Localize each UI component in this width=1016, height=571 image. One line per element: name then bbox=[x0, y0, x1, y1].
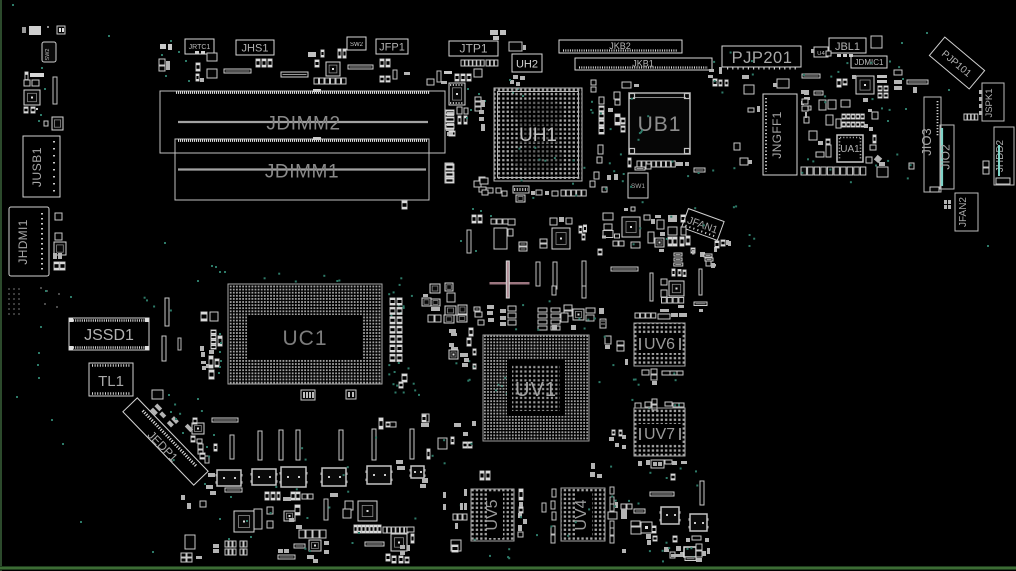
svg-text:UV1: UV1 bbox=[515, 379, 557, 401]
svg-text:JHDD2: JHDD2 bbox=[995, 139, 1006, 172]
svg-text:UH1: UH1 bbox=[519, 125, 557, 146]
svg-text:TL1: TL1 bbox=[98, 373, 124, 390]
svg-text:UB1: UB1 bbox=[638, 113, 682, 136]
svg-text:UC1: UC1 bbox=[282, 327, 327, 350]
svg-text:JIO2: JIO2 bbox=[939, 144, 953, 170]
svg-text:UA1: UA1 bbox=[840, 144, 860, 155]
svg-text:JNGFF1: JNGFF1 bbox=[770, 111, 784, 158]
svg-text:UV5: UV5 bbox=[484, 499, 501, 530]
svg-text:SW2: SW2 bbox=[45, 49, 51, 61]
svg-text:UH2: UH2 bbox=[516, 59, 538, 71]
svg-text:JFP1: JFP1 bbox=[379, 42, 405, 54]
svg-text:JHS1: JHS1 bbox=[242, 43, 269, 55]
svg-text:JSPK1: JSPK1 bbox=[984, 88, 995, 117]
svg-text:JRTC1: JRTC1 bbox=[189, 44, 211, 51]
svg-text:SW1: SW1 bbox=[631, 183, 645, 190]
svg-text:JDIMM1: JDIMM1 bbox=[265, 162, 339, 183]
svg-text:U4: U4 bbox=[817, 51, 825, 57]
svg-text:JUSB1: JUSB1 bbox=[30, 147, 44, 187]
svg-text:JBL1: JBL1 bbox=[835, 41, 860, 53]
svg-text:PJP201: PJP201 bbox=[732, 49, 793, 67]
svg-text:JDMIC1: JDMIC1 bbox=[855, 58, 884, 67]
svg-text:UV4: UV4 bbox=[573, 499, 590, 530]
svg-text:SW2: SW2 bbox=[350, 42, 364, 48]
svg-text:JTP1: JTP1 bbox=[459, 42, 487, 56]
svg-text:JFAN2: JFAN2 bbox=[958, 197, 969, 227]
svg-text:JDIMM2: JDIMM2 bbox=[266, 114, 340, 135]
svg-text:UV6: UV6 bbox=[644, 336, 675, 353]
svg-text:JHDMI1: JHDMI1 bbox=[16, 219, 30, 264]
svg-text:JIO3: JIO3 bbox=[919, 128, 934, 155]
svg-text:JSSD1: JSSD1 bbox=[84, 327, 134, 344]
svg-text:UV7: UV7 bbox=[644, 426, 675, 443]
